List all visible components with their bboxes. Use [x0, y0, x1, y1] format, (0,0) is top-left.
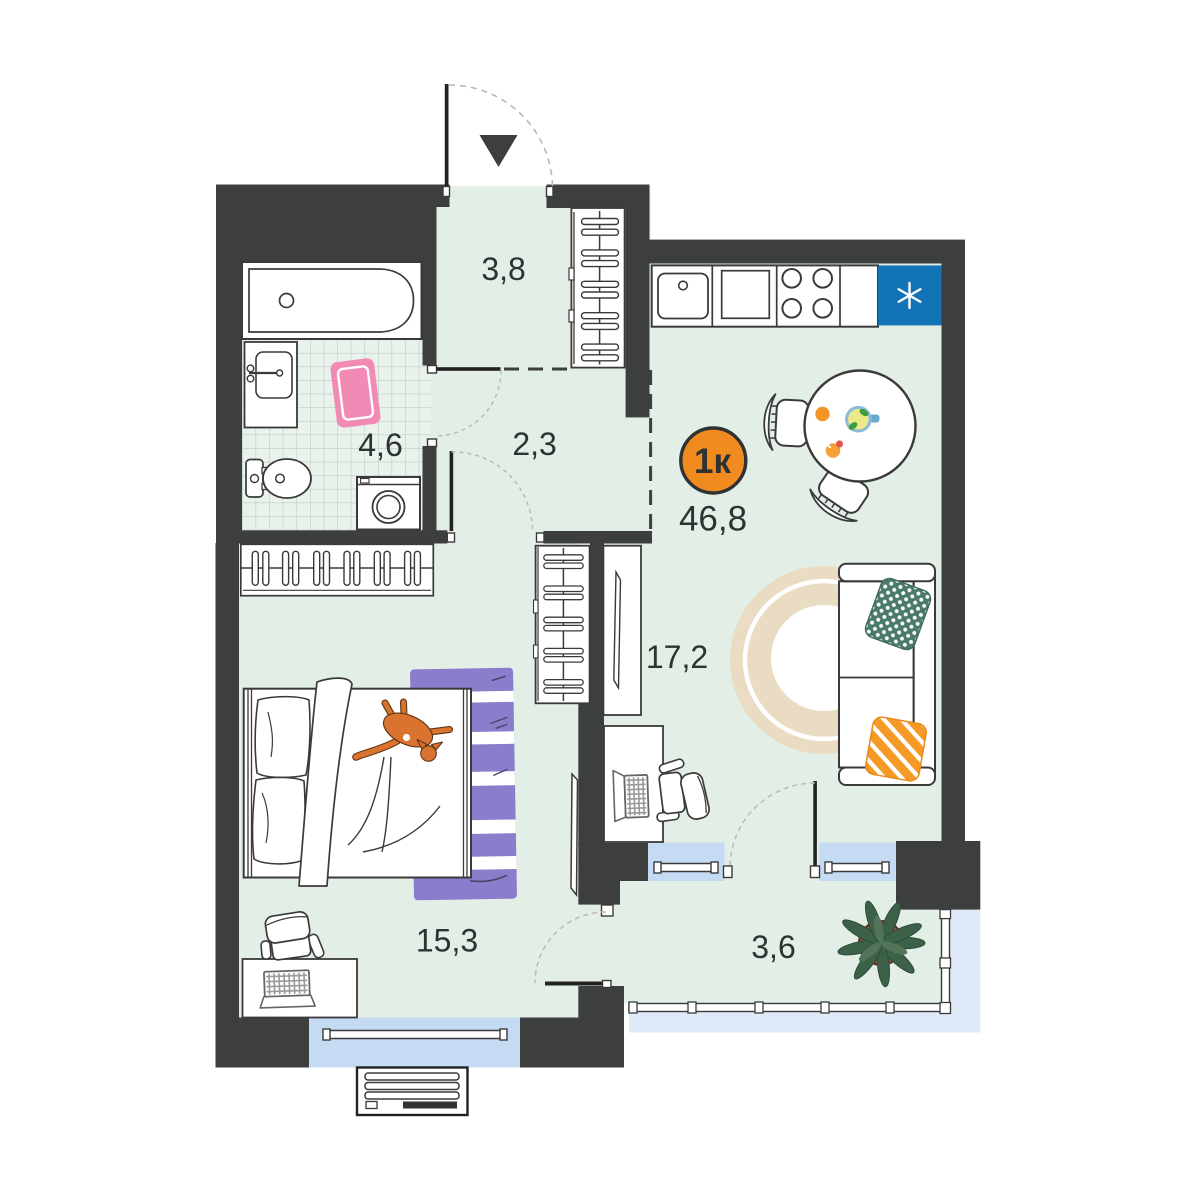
svg-text:17,2: 17,2 [646, 639, 708, 675]
svg-text:3,8: 3,8 [481, 251, 525, 287]
svg-text:3,6: 3,6 [751, 929, 795, 965]
svg-text:4,6: 4,6 [358, 427, 402, 463]
svg-text:2,3: 2,3 [512, 426, 556, 462]
svg-text:15,3: 15,3 [416, 923, 478, 959]
svg-text:1к: 1к [694, 442, 731, 481]
svg-text:46,8: 46,8 [679, 500, 747, 539]
